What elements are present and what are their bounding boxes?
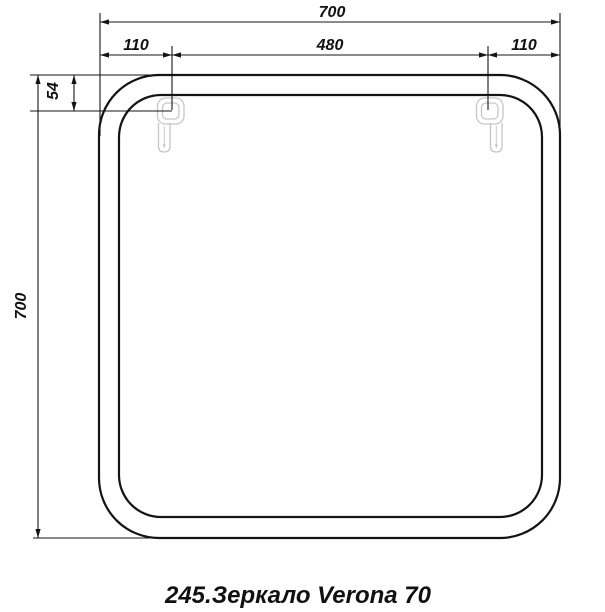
right-hook-loop-inner bbox=[482, 103, 499, 119]
technical-drawing: 700 110 480 110 54 700 bbox=[0, 0, 605, 612]
arrow-hook-drop-bottom bbox=[71, 102, 76, 111]
arrow-seg2-right bbox=[479, 52, 488, 57]
dim-label-hook-drop: 54 bbox=[45, 82, 62, 100]
right-hook-stem-arrow bbox=[495, 144, 498, 149]
dim-label-top-left: 110 bbox=[123, 37, 149, 54]
dim-top-segments: 110 480 110 bbox=[100, 37, 560, 58]
arrow-side-total-bottom bbox=[35, 529, 40, 538]
arrow-seg-right-out bbox=[551, 52, 560, 57]
dim-label-top-right: 110 bbox=[511, 37, 537, 54]
right-hook-loop-outer bbox=[477, 98, 504, 124]
drawing-canvas: 700 110 480 110 54 700 bbox=[0, 0, 605, 612]
arrow-hook-drop-top bbox=[71, 75, 76, 84]
arrow-side-total-top bbox=[35, 75, 40, 84]
left-mounting-hook bbox=[158, 98, 185, 152]
arrow-seg-left-out bbox=[100, 52, 109, 57]
dim-hook-drop: 54 bbox=[45, 75, 77, 111]
arrow-top-total-left bbox=[100, 19, 109, 24]
arrow-top-total-right bbox=[551, 19, 560, 24]
dim-top-total: 700 bbox=[100, 4, 560, 25]
arrow-seg1-right bbox=[163, 52, 172, 57]
left-hook-stem-arrow bbox=[163, 144, 166, 149]
right-mounting-hook bbox=[477, 98, 504, 152]
extension-lines bbox=[30, 13, 560, 538]
dim-label-top-center: 480 bbox=[316, 37, 344, 54]
dim-side-total: 700 bbox=[13, 75, 41, 538]
mirror-inner-outline bbox=[119, 95, 542, 517]
dim-label-top-total: 700 bbox=[319, 4, 346, 21]
dim-label-side-total: 700 bbox=[13, 293, 30, 320]
drawing-caption: 245.Зеркало Verona 70 bbox=[164, 582, 432, 609]
arrow-seg2-left bbox=[172, 52, 181, 57]
arrow-seg3-left bbox=[488, 52, 497, 57]
